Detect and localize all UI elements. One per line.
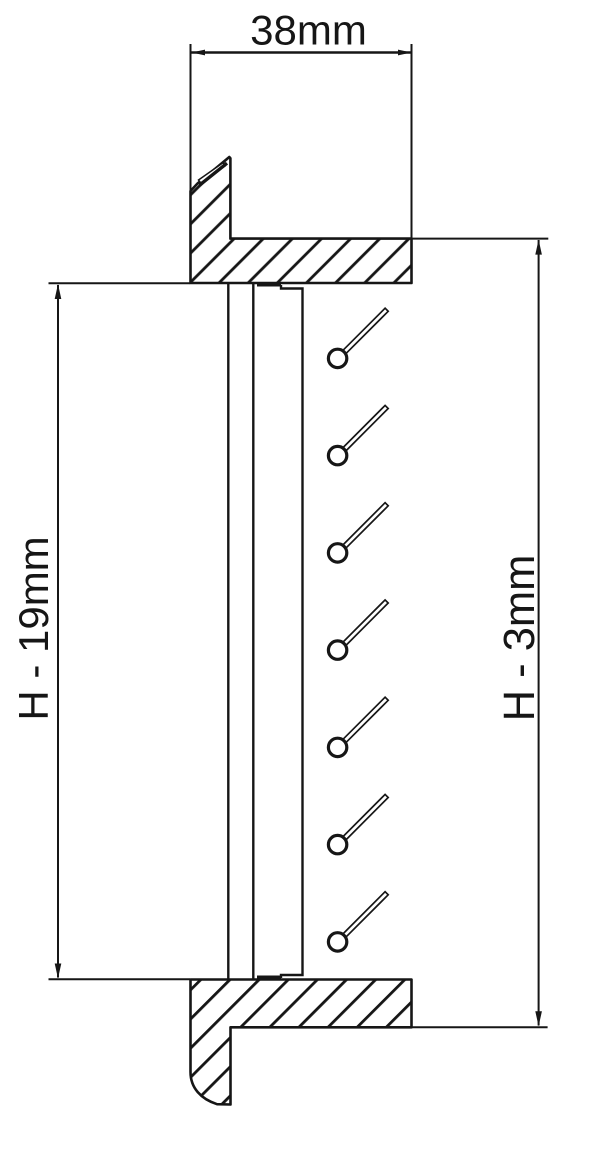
svg-text:H - 19mm: H - 19mm bbox=[10, 536, 57, 720]
svg-text:H - 3mm: H - 3mm bbox=[496, 555, 544, 722]
svg-text:38mm: 38mm bbox=[250, 7, 367, 54]
